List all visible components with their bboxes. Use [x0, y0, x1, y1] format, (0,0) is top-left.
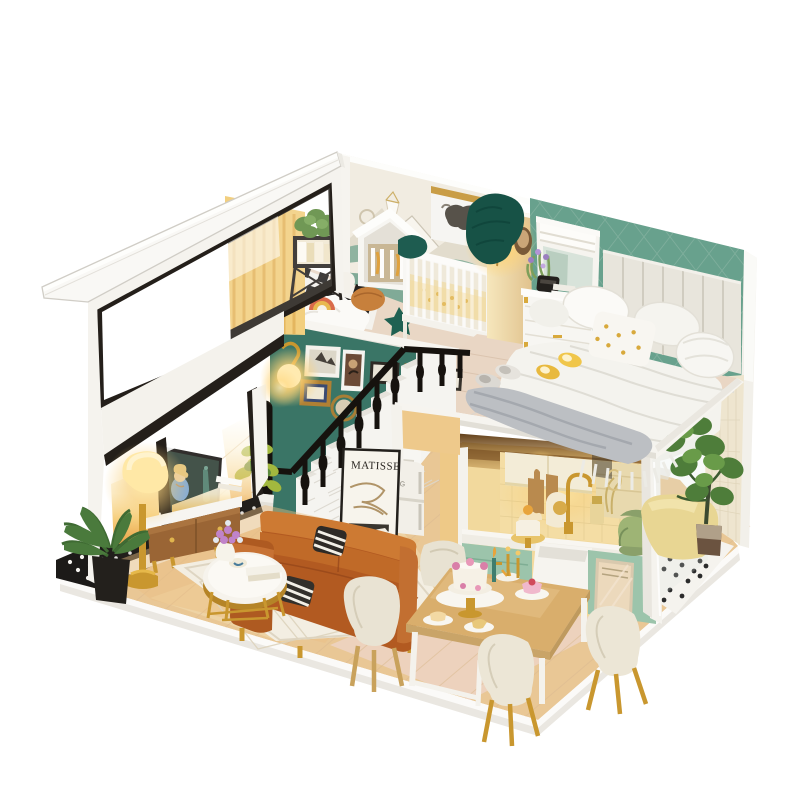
- svg-text:MATISSE: MATISSE: [351, 459, 401, 473]
